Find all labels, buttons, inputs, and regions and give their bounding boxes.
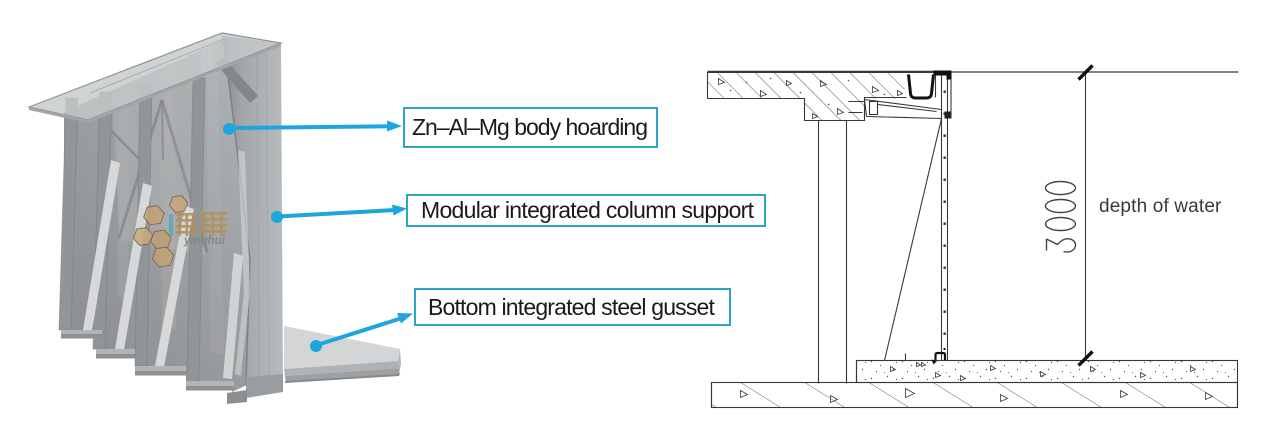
svg-text:yinghui: yinghui [183,235,226,247]
svg-text:depth of water: depth of water [1099,196,1222,217]
